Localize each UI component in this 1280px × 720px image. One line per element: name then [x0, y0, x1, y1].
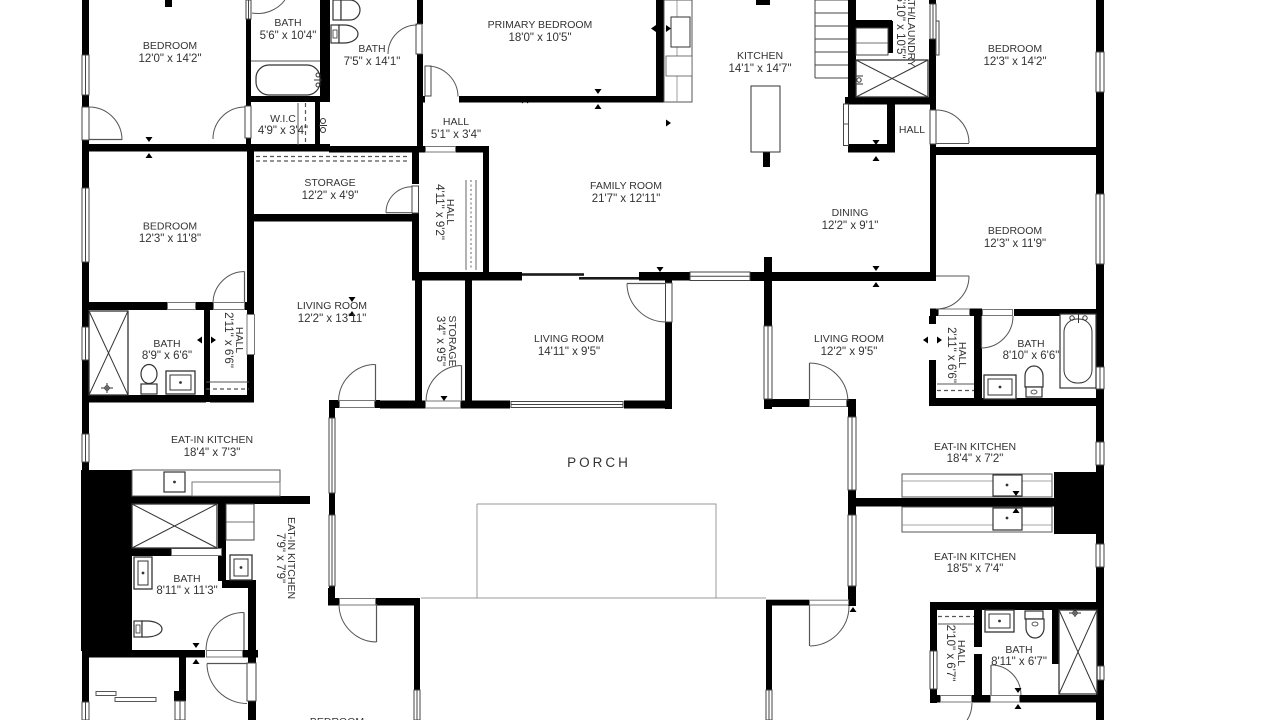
- svg-text:PRIMARY BEDROOM: PRIMARY BEDROOM: [488, 19, 593, 31]
- svg-text:BEDROOM: BEDROOM: [988, 225, 1042, 237]
- svg-text:4'11" x 9'2": 4'11" x 9'2": [433, 184, 445, 240]
- svg-text:HALL: HALL: [443, 116, 469, 128]
- svg-text:W.I.C: W.I.C: [270, 113, 296, 125]
- svg-text:3'4" x 9'5": 3'4" x 9'5": [434, 316, 446, 366]
- svg-text:12'2" x 9'1": 12'2" x 9'1": [822, 220, 879, 232]
- svg-text:8'10" x 6'6": 8'10" x 6'6": [1003, 350, 1060, 362]
- svg-text:12'3" x 11'9": 12'3" x 11'9": [984, 238, 1046, 250]
- svg-text:BATH: BATH: [173, 573, 200, 585]
- svg-text:STORAGE: STORAGE: [446, 315, 458, 366]
- svg-text:BATH: BATH: [1005, 644, 1032, 656]
- svg-text:BEDROOM: BEDROOM: [143, 221, 197, 233]
- svg-text:BATH: BATH: [358, 43, 385, 55]
- svg-text:LIVING ROOM: LIVING ROOM: [814, 333, 884, 345]
- svg-text:5'1" x 3'4": 5'1" x 3'4": [431, 129, 481, 141]
- svg-text:BATH: BATH: [153, 338, 180, 350]
- svg-text:2'10" x 6'7": 2'10" x 6'7": [944, 625, 956, 682]
- svg-text:FAMILY ROOM: FAMILY ROOM: [590, 180, 662, 192]
- svg-text:12'0" x 14'2": 12'0" x 14'2": [138, 53, 201, 65]
- svg-text:18'4" x 7'3": 18'4" x 7'3": [184, 447, 241, 459]
- svg-text:4'9" x 3'4": 4'9" x 3'4": [258, 125, 308, 137]
- svg-text:14'1" x 14'7": 14'1" x 14'7": [728, 63, 791, 75]
- svg-text:STORAGE: STORAGE: [304, 177, 355, 189]
- svg-text:EAT-IN KITCHEN: EAT-IN KITCHEN: [934, 551, 1016, 563]
- svg-text:8'9" x 6'6": 8'9" x 6'6": [142, 350, 192, 362]
- svg-text:5'6" x 10'4": 5'6" x 10'4": [260, 30, 317, 42]
- svg-text:8'11" x 6'7": 8'11" x 6'7": [991, 656, 1047, 668]
- svg-text:LIVING ROOM: LIVING ROOM: [297, 300, 367, 312]
- svg-text:7'5" x 14'1": 7'5" x 14'1": [344, 56, 401, 68]
- svg-text:BEDROOM: BEDROOM: [310, 716, 364, 720]
- svg-text:21'7" x 12'11": 21'7" x 12'11": [592, 193, 661, 205]
- svg-text:EAT-IN KITCHEN: EAT-IN KITCHEN: [171, 434, 253, 446]
- svg-text:14'11" x 9'5": 14'11" x 9'5": [538, 346, 600, 358]
- svg-text:PORCH: PORCH: [567, 455, 631, 470]
- svg-text:12'3" x 11'8": 12'3" x 11'8": [139, 233, 201, 245]
- svg-text:12'3" x 14'2": 12'3" x 14'2": [983, 56, 1046, 68]
- svg-text:DINING: DINING: [832, 207, 869, 219]
- svg-text:12'2" x 13'11": 12'2" x 13'11": [298, 313, 367, 325]
- svg-text:EAT-IN KITCHEN: EAT-IN KITCHEN: [934, 441, 1016, 453]
- svg-text:8'11" x 11'3": 8'11" x 11'3": [156, 585, 217, 597]
- svg-text:BEDROOM: BEDROOM: [988, 43, 1042, 55]
- svg-text:18'0" x 10'5": 18'0" x 10'5": [508, 32, 571, 44]
- svg-text:KITCHEN: KITCHEN: [737, 50, 783, 62]
- svg-text:12'2" x 9'5": 12'2" x 9'5": [821, 346, 878, 358]
- svg-text:2'11" x 6'6": 2'11" x 6'6": [945, 327, 957, 383]
- svg-text:HALL: HALL: [899, 124, 925, 136]
- svg-text:BATH: BATH: [1017, 338, 1044, 350]
- svg-text:2'11" x 6'6": 2'11" x 6'6": [222, 312, 234, 368]
- svg-text:18'4" x 7'2": 18'4" x 7'2": [947, 453, 1004, 465]
- svg-text:18'5" x 7'4": 18'5" x 7'4": [947, 563, 1004, 575]
- svg-text:BEDROOM: BEDROOM: [143, 40, 197, 52]
- svg-text:LIVING ROOM: LIVING ROOM: [534, 333, 604, 345]
- svg-text:7'9" x 7'9": 7'9" x 7'9": [274, 533, 286, 583]
- svg-text:5'10" x 10'5": 5'10" x 10'5": [894, 0, 906, 59]
- svg-text:BATH: BATH: [274, 17, 301, 29]
- svg-text:12'2" x 4'9": 12'2" x 4'9": [302, 190, 359, 202]
